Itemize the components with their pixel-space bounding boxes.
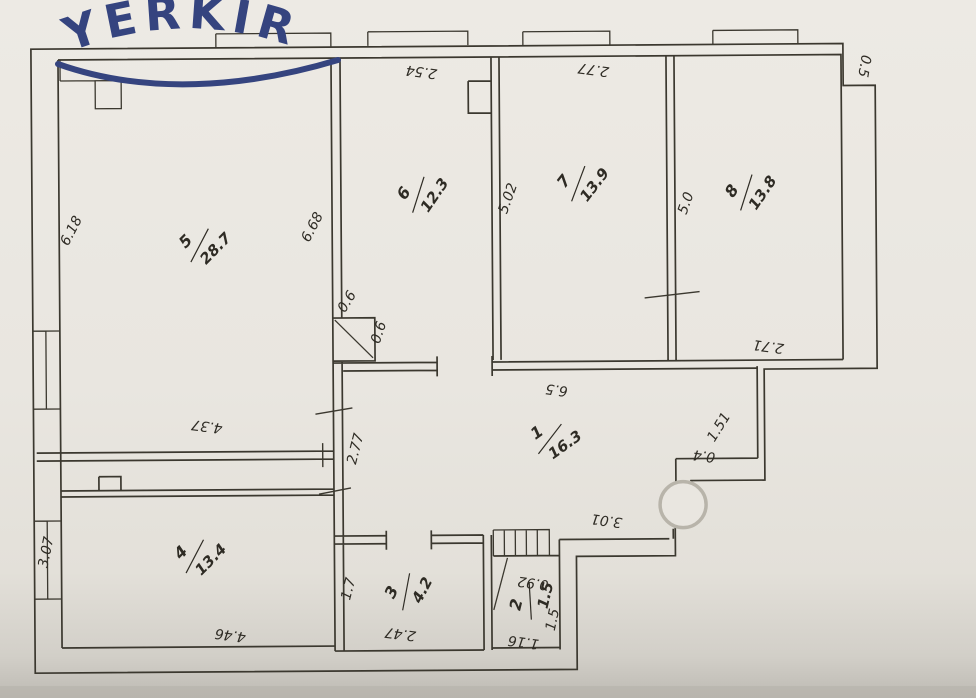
vent-shaft-hatching	[493, 530, 549, 556]
dim-room8-bottom: 2.71	[752, 336, 785, 356]
dim-hall-east: 1.51	[704, 410, 734, 445]
room1-area: 16.3	[545, 427, 586, 463]
room6-number: 6	[393, 183, 415, 203]
room-label-1: 1 16.3	[522, 405, 585, 468]
door-swing	[493, 558, 507, 610]
dim-room2-top: 0.92	[516, 573, 549, 593]
room-label-7: 7 13.9	[549, 148, 612, 212]
dim-room3-bottom: 2.47	[384, 624, 417, 644]
dim-room7-top: 2.77	[577, 59, 610, 79]
photo-shadow-band	[0, 686, 976, 698]
floor-plan: 5 28.7 6 12.3 7 13.9 8 13.8 1	[0, 0, 976, 698]
dim-room5-right: 6.68	[298, 210, 327, 245]
dim-room2-bottom: 1.16	[507, 632, 540, 652]
room-label-6: 6 12.3	[390, 159, 453, 222]
room3-number: 3	[380, 583, 402, 602]
dim-room5-left: 6.18	[57, 213, 86, 248]
dim-hall-west: 2.77	[344, 432, 367, 466]
dim-hall-top: 6.5	[545, 380, 569, 399]
room7-number: 7	[553, 170, 575, 191]
dim-hall-step: 0.4	[692, 446, 716, 465]
partition-walls	[34, 55, 845, 654]
dim-room4-left: 3.07	[36, 535, 58, 569]
dim-hall-south: 3.01	[590, 510, 623, 530]
logo-text: YERKIR	[55, 0, 307, 62]
room2-number: 2	[505, 597, 526, 612]
exterior-wall-outline	[31, 43, 879, 673]
room6-area: 12.3	[417, 175, 453, 216]
dim-room3-left: 1.7	[338, 576, 359, 602]
room1-number: 1	[527, 421, 547, 443]
room-label-5: 5 28.7	[171, 210, 235, 274]
dim-shaft-h: 0.6	[368, 319, 390, 345]
dim-room6-top: 2.54	[405, 61, 438, 81]
room-label-4: 4 13.4	[166, 521, 230, 585]
room7-area: 13.9	[576, 165, 613, 205]
walls	[31, 43, 879, 673]
room3-area: 4.2	[408, 574, 437, 607]
interior-wall-faces	[58, 55, 845, 653]
room4-number: 4	[169, 542, 191, 564]
dim-shaft-w: 0.6	[335, 288, 360, 315]
dim-room4-bottom: 4.46	[214, 625, 247, 645]
room-label-3: 3 4.2	[378, 562, 437, 619]
room4-area: 13.4	[191, 540, 230, 579]
room-label-8: 8 13.8	[718, 157, 781, 220]
dimension-ticks	[315, 292, 701, 495]
room8-number: 8	[721, 181, 743, 201]
logo: YERKIR	[55, 0, 338, 84]
dimension-labels: 6.18 6.68 4.37 2.54 5.02 2.77 5.0 0.5 2.…	[32, 54, 878, 656]
room5-number: 5	[175, 231, 196, 252]
dim-room78-height: 5.0	[675, 190, 698, 216]
room8-area: 13.8	[745, 172, 781, 213]
logo-wordmark: YERKIR	[55, 0, 307, 62]
dim-corner-notch: 0.5	[854, 54, 874, 79]
corner-shaft-diagonal	[335, 320, 373, 358]
room5-area: 28.7	[196, 229, 235, 268]
dim-room5-width: 4.37	[190, 416, 223, 436]
column-circle	[660, 481, 706, 527]
room-labels: 5 28.7 6 12.3 7 13.9 8 13.8 1	[163, 147, 783, 627]
